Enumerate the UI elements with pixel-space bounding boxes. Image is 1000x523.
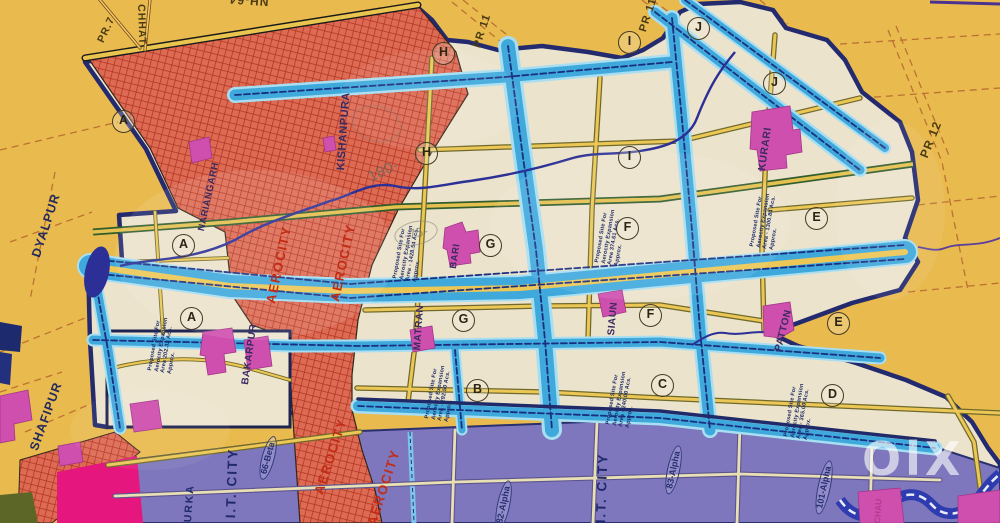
place-label-urka: URKA <box>183 484 196 523</box>
sector-marker-j-1: J <box>687 17 710 40</box>
sector-marker-d: D <box>821 384 844 407</box>
sector-marker-e-2: E <box>827 312 850 335</box>
place-label-chau: CHAU <box>873 498 883 523</box>
sector-marker-b: B <box>466 379 489 402</box>
sector-marker-j-2: J <box>763 72 786 95</box>
sector-marker-a-2: A <box>172 234 195 257</box>
sector-marker-c: C <box>651 374 674 397</box>
sector-marker-g-2: G <box>452 309 475 332</box>
sector-marker-g-1: G <box>479 234 502 257</box>
sector-marker-i-2: I <box>618 146 641 169</box>
sector-marker-h-2: H <box>415 142 438 165</box>
master-plan-map-photo: PR.7 CHHAT NH-64 PR 11 PR 11 PR 12 DYALP… <box>0 0 1000 523</box>
map-graphic <box>0 0 1000 523</box>
zone-label-it-city-2: I.T. CITY <box>594 453 610 523</box>
sector-marker-a-3: A <box>180 307 203 330</box>
sector-marker-f-2: F <box>639 304 662 327</box>
road-label-chhat: CHHAT <box>136 4 148 45</box>
olx-watermark-logo: OlX <box>862 432 964 486</box>
sector-marker-e-1: E <box>805 207 828 230</box>
sector-marker-a-1: A <box>112 110 135 133</box>
sector-marker-h-1: H <box>432 42 455 65</box>
sector-marker-i-1: I <box>618 31 641 54</box>
zone-label-it-city-1: I.T. CITY <box>224 448 240 519</box>
